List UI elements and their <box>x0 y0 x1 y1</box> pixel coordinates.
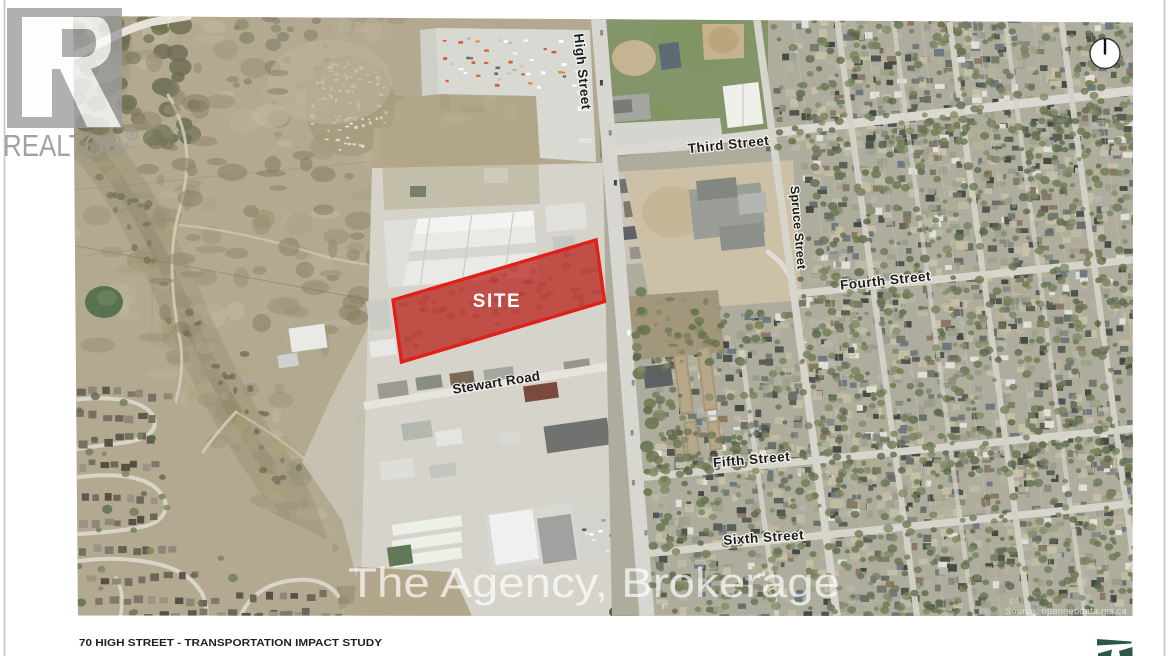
svg-text:The Agency, Brokerage: The Agency, Brokerage <box>348 559 840 606</box>
svg-text:Source: opengeodata.gis.ca: Source: opengeodata.gis.ca <box>1005 606 1127 616</box>
svg-text:SITE: SITE <box>473 291 522 312</box>
svg-text:REALTOR: REALTOR <box>3 128 123 163</box>
